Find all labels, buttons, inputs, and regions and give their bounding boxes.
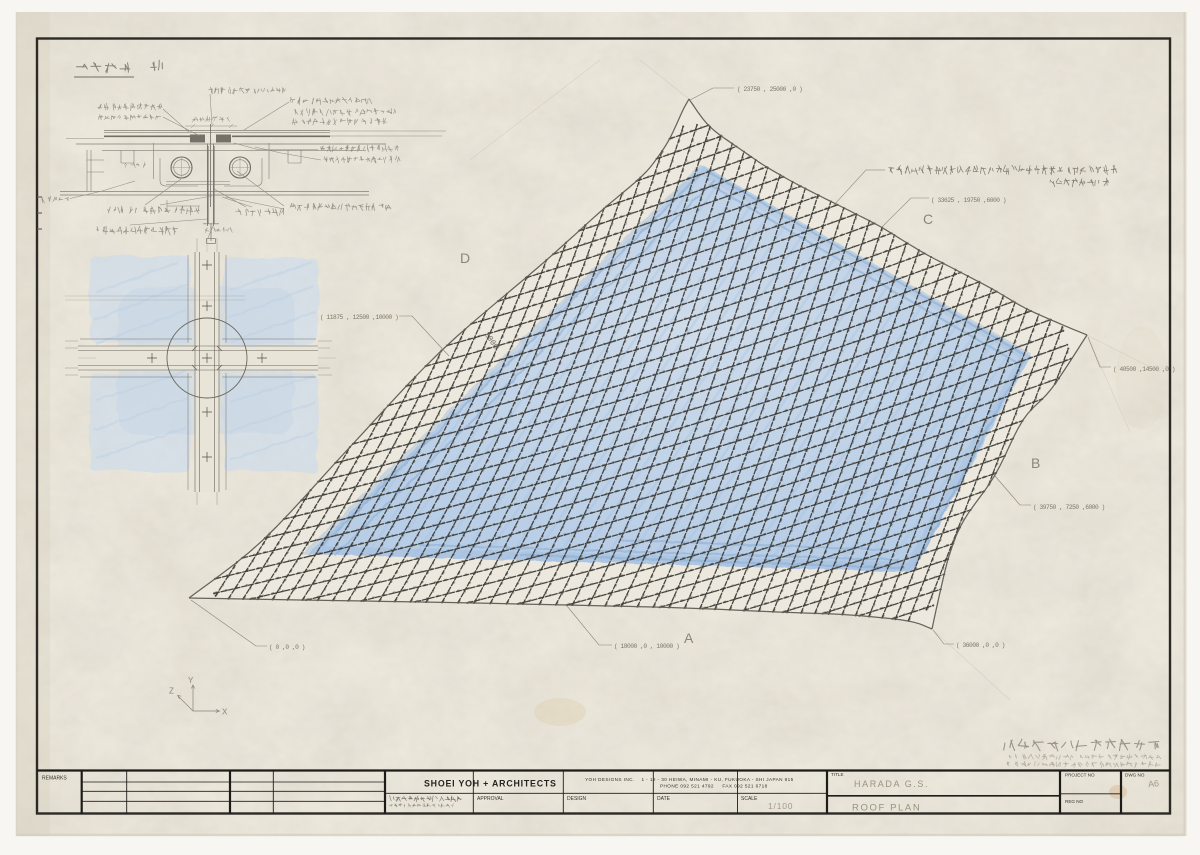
svg-text:ROOF PLAN: ROOF PLAN: [852, 803, 921, 814]
svg-text:DATE: DATE: [657, 796, 671, 802]
svg-text:Y: Y: [188, 676, 194, 685]
svg-text:( 0 ,0 ,0 ): ( 0 ,0 ,0 ): [269, 644, 305, 651]
svg-text:SCALE: SCALE: [741, 796, 758, 802]
svg-text:( 36000 ,0 ,0 ): ( 36000 ,0 ,0 ): [956, 642, 1005, 649]
svg-text:D: D: [460, 250, 470, 266]
svg-text:TITLE: TITLE: [831, 772, 844, 777]
svg-text:DWG NO: DWG NO: [1125, 773, 1145, 778]
svg-text:REMARKS: REMARKS: [42, 776, 67, 782]
svg-text:DESIGN: DESIGN: [567, 796, 587, 802]
svg-text:1/100: 1/100: [768, 801, 793, 811]
svg-text:( 39750 , 7250 ,6000 ): ( 39750 , 7250 ,6000 ): [1033, 504, 1105, 511]
svg-text:B: B: [1031, 455, 1040, 471]
svg-text:HARADA G.S.: HARADA G.S.: [854, 779, 929, 789]
svg-text:( 11875 , 12500 ,10000 ): ( 11875 , 12500 ,10000 ): [320, 314, 398, 321]
svg-text:( 23750 , 25000 ,0 ): ( 23750 , 25000 ,0 ): [737, 86, 802, 93]
svg-text:( 18000 ,0 , 10000 ): ( 18000 ,0 , 10000 ): [614, 643, 679, 650]
svg-text:A: A: [684, 630, 694, 646]
svg-text:APPROVAL: APPROVAL: [477, 796, 504, 802]
svg-text:SHOEI YOH + ARCHITECTS: SHOEI YOH + ARCHITECTS: [424, 779, 557, 789]
svg-text:Z: Z: [169, 687, 174, 696]
svg-text:PROJECT NO: PROJECT NO: [1065, 773, 1095, 778]
svg-text:X: X: [222, 708, 228, 717]
svg-text:YOH DESIGNS INC. 1 - 12 -: YOH DESIGNS INC. 1 - 12 - 30 HEIWA, MINA…: [585, 777, 794, 782]
svg-text:( 33625 , 19750 ,6000 ): ( 33625 , 19750 ,6000 ): [931, 197, 1006, 204]
svg-text:A6: A6: [1147, 778, 1159, 789]
svg-text:( 40500 ,14500 ,0 ): ( 40500 ,14500 ,0 ): [1113, 366, 1175, 373]
svg-text:C: C: [923, 211, 933, 227]
svg-text:PHONE 092 521 4792 FAX: PHONE 092 521 4792 FAX 092 521 6718: [660, 784, 768, 789]
svg-text:REG NO: REG NO: [1065, 799, 1084, 804]
